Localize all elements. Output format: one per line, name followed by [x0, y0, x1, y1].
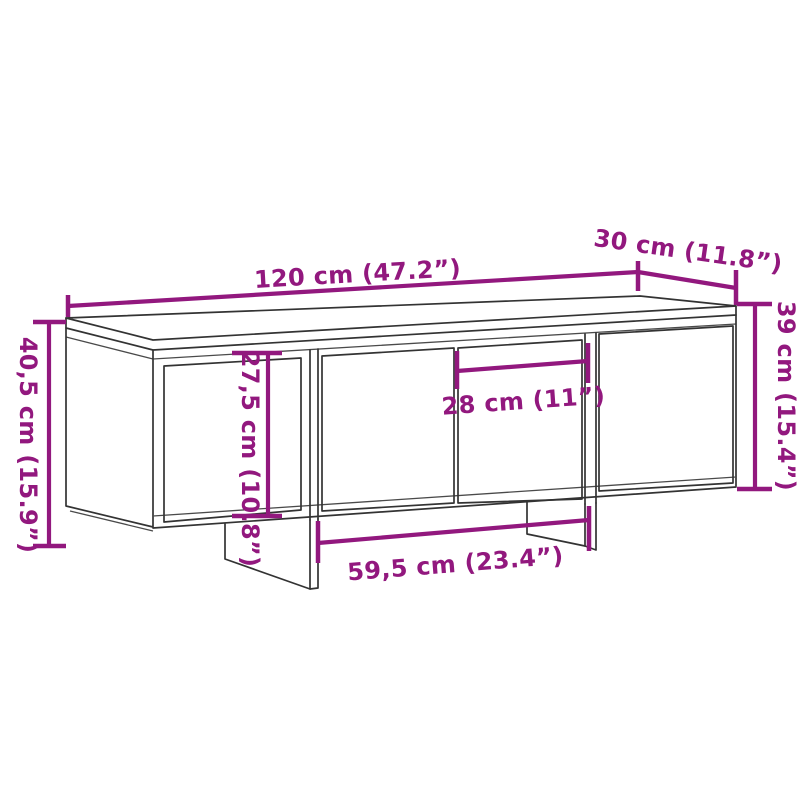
- door-right: [599, 326, 733, 491]
- door-left: [164, 358, 301, 522]
- dim-label-inner-width: 59,5 cm (23.4”): [346, 542, 564, 587]
- cabinet-left-panel: [66, 328, 153, 531]
- dim-label-depth: 30 cm (11.8”): [592, 224, 784, 278]
- dim-label-overall-width: 120 cm (47.2”): [253, 254, 461, 294]
- dim-label-carcass-height: 39 cm (15.4”): [772, 301, 800, 491]
- tv-cabinet-dimension-diagram: 120 cm (47.2”) 30 cm (11.8”) 40,5 cm (15…: [0, 0, 800, 800]
- cabinet-dividers: [310, 333, 596, 520]
- dimension-depth: 30 cm (11.8”): [592, 224, 784, 305]
- cabinet-top-face: [66, 296, 736, 359]
- dimension-inner-width: 59,5 cm (23.4”): [318, 506, 589, 586]
- dimension-carcass-height: 39 cm (15.4”): [737, 301, 800, 491]
- dim-label-overall-height: 40,5 cm (15.9”): [14, 337, 42, 554]
- cabinet-line-art: [66, 296, 736, 589]
- dim-label-inner-height: 27,5 cm (10.8”): [236, 351, 264, 568]
- door-mid-left: [322, 348, 454, 511]
- dimension-overall-height: 40,5 cm (15.9”): [14, 322, 66, 553]
- dimension-inner-height: 27,5 cm (10.8”): [232, 351, 282, 568]
